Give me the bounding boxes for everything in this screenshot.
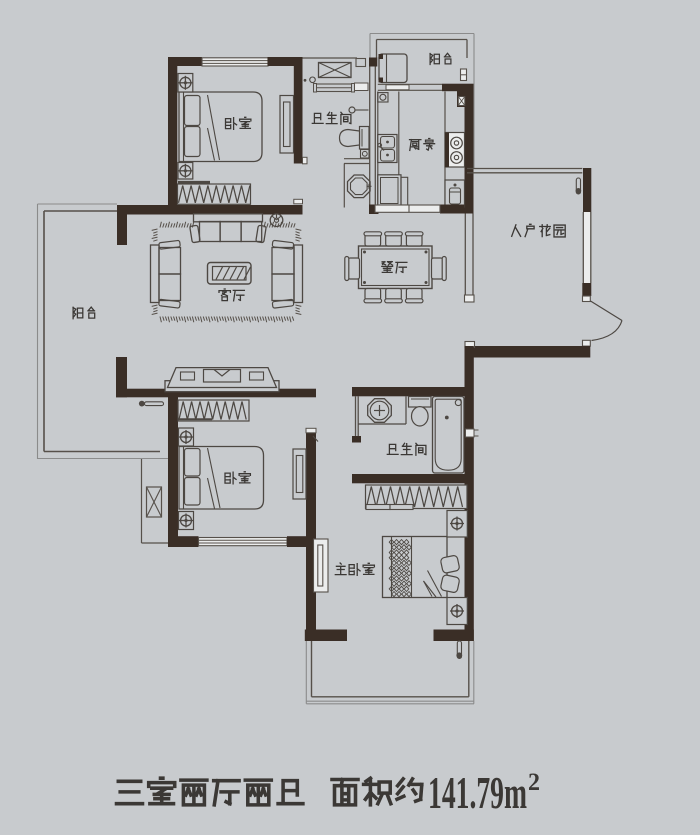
svg-text:141.79m: 141.79m xyxy=(428,767,527,818)
svg-text:2: 2 xyxy=(528,769,540,796)
